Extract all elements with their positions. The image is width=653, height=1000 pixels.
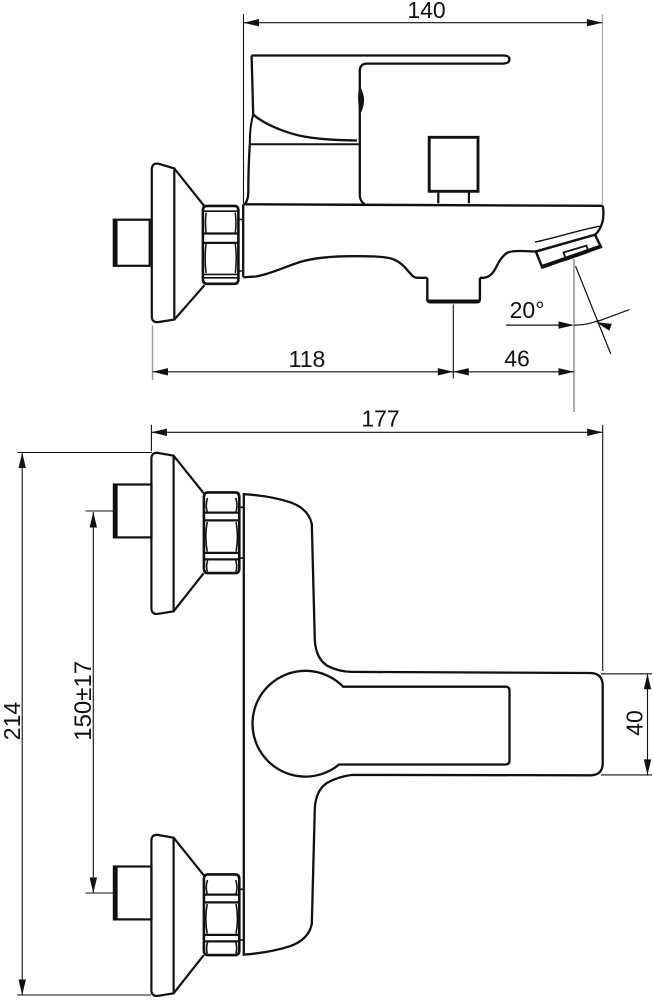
svg-text:140: 140 — [407, 0, 445, 23]
svg-text:118: 118 — [289, 346, 326, 372]
svg-text:46: 46 — [504, 346, 530, 372]
svg-text:20°: 20° — [510, 297, 545, 323]
svg-text:214: 214 — [0, 702, 25, 741]
svg-text:177: 177 — [361, 406, 399, 432]
svg-text:150±17: 150±17 — [70, 661, 97, 741]
svg-text:40: 40 — [622, 710, 648, 736]
